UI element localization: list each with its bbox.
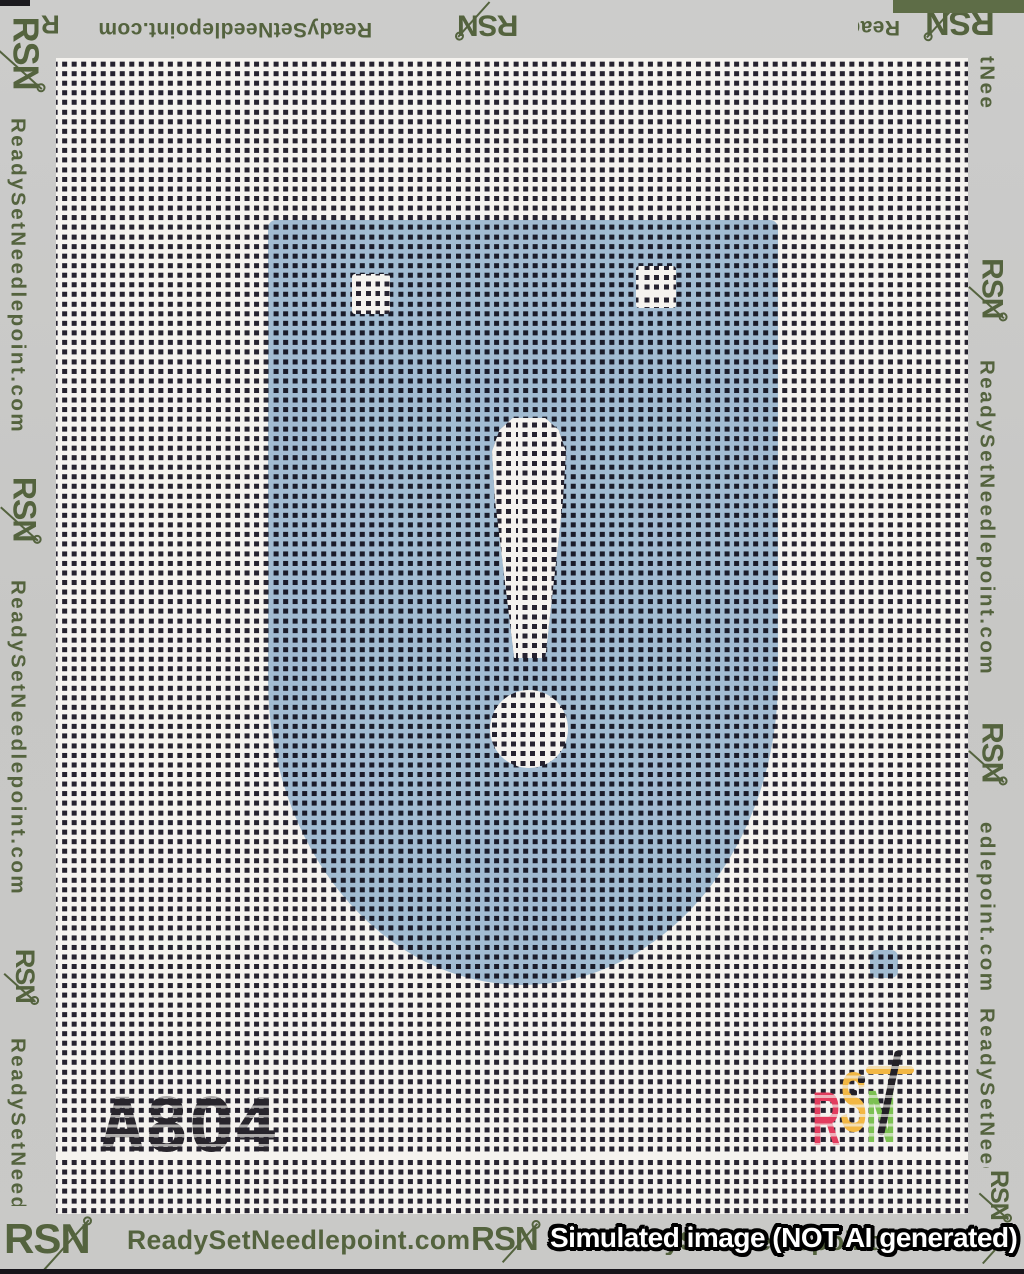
brand-website-text-fragment: edlepoint.com: [976, 822, 997, 993]
photo-edge-sliver: [0, 0, 30, 6]
rsn-logo-text: RSN: [4, 1215, 90, 1262]
rsn-logo-text: RSN: [471, 1220, 538, 1257]
rsn-logo: RSN: [8, 17, 42, 90]
rsn-stitched-logo: R S N: [810, 1050, 922, 1162]
rsn-logo: RSN: [458, 10, 518, 39]
rsn-logo: RSN: [471, 1223, 538, 1254]
exclamation-dot: [490, 690, 568, 768]
brand-website-text-fragment: ReadySetNeedlepoint.com: [858, 17, 900, 38]
simulated-watermark: Simulated image (NOT AI generated): [550, 1222, 1017, 1254]
stitched-letter-r: R: [812, 1082, 841, 1158]
stitch-dot: [851, 1090, 857, 1096]
rsn-logo-text: RSN: [6, 477, 42, 542]
rsn-logo: RSN: [11, 949, 37, 1003]
shield-cutout-square-right: [636, 266, 676, 308]
brand-website-text: ReadySetNeedlepoint.com: [976, 360, 997, 676]
green-edge-strip: [893, 0, 1024, 13]
stitch-dot: [858, 1076, 865, 1083]
rsn-logo: RSN: [977, 258, 1006, 318]
stitched-letter-s: S: [840, 1060, 867, 1144]
brand-website-text-fragment: ReadySetNeedlepoint.com: [976, 1008, 997, 1168]
brand-website-text: ReadySetNeedlepoint.com: [7, 118, 28, 434]
design-code: A8O4: [100, 1089, 278, 1163]
brand-website-text-fragment: tNee: [976, 56, 997, 110]
brand-website-text: ReadySetNeedlepoint.com: [127, 1227, 470, 1254]
rsn-logo: RSN: [4, 1219, 90, 1259]
brand-website-text-fragment: ReadySetNeedlepoint.com: [7, 1038, 28, 1206]
brand-website-text: ReadySetNeedlepoint.com: [7, 580, 28, 896]
rsn-logo: RSN: [9, 477, 39, 542]
needlepoint-canvas-photo: A8O4 R S N R ReadySetNeedlepoint.com RSN…: [0, 0, 1024, 1274]
shield-cutout-square-left: [352, 274, 390, 314]
photo-edge-strip: [0, 1269, 1024, 1274]
blue-stitch-dot: [870, 950, 898, 978]
brand-website-text: ReadySetNeedlepoint.com: [98, 19, 372, 40]
rsn-logo: RSN: [977, 722, 1006, 782]
rsn-logo-text: RSN: [6, 17, 47, 90]
rsn-logo: RSN: [986, 1170, 1010, 1220]
